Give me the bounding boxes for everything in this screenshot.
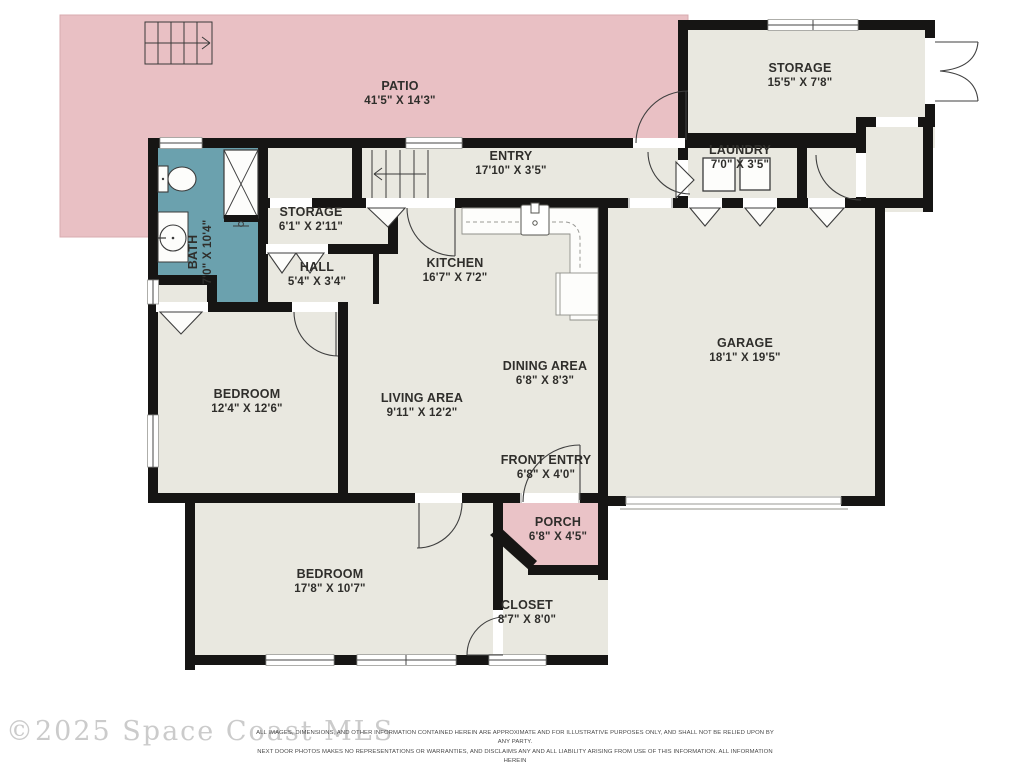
svg-text:LAUNDRY: LAUNDRY bbox=[709, 143, 772, 157]
toilet bbox=[158, 166, 196, 192]
floor-plan-svg: PATIO41'5" X 14'3"STORAGE15'5" X 7'8"ENT… bbox=[0, 0, 1024, 768]
svg-text:15'5" X 7'8": 15'5" X 7'8" bbox=[768, 77, 833, 89]
svg-text:BEDROOM: BEDROOM bbox=[214, 387, 281, 401]
garage-door bbox=[620, 497, 848, 509]
svg-text:5'4" X 3'4": 5'4" X 3'4" bbox=[288, 276, 346, 288]
floor-plan-page: PATIO41'5" X 14'3"STORAGE15'5" X 7'8"ENT… bbox=[0, 0, 1024, 768]
svg-text:12'4" X 12'6": 12'4" X 12'6" bbox=[211, 403, 282, 415]
disclaimer-line-2: NEXT DOOR PHOTOS MAKES NO REPRESENTATION… bbox=[250, 748, 780, 767]
svg-text:18'1" X 19'5": 18'1" X 19'5" bbox=[709, 352, 780, 364]
svg-text:6'8" X 4'5": 6'8" X 4'5" bbox=[529, 531, 587, 543]
disclaimer-line-1: ALL IMAGES, DIMENSIONS, AND OTHER INFORM… bbox=[250, 729, 780, 748]
svg-text:KITCHEN: KITCHEN bbox=[427, 256, 484, 270]
shower bbox=[224, 150, 258, 226]
svg-text:BATH: BATH bbox=[186, 235, 200, 270]
svg-text:16'7" X 7'2": 16'7" X 7'2" bbox=[423, 272, 488, 284]
svg-text:ENTRY: ENTRY bbox=[490, 149, 533, 163]
svg-text:6'8" X 8'3": 6'8" X 8'3" bbox=[516, 375, 574, 387]
svg-text:6'1" X 2'11": 6'1" X 2'11" bbox=[279, 221, 343, 233]
svg-text:7'0" X 10'4": 7'0" X 10'4" bbox=[202, 220, 214, 285]
svg-text:8'7" X 8'0": 8'7" X 8'0" bbox=[498, 614, 556, 626]
kitchen-sink bbox=[521, 203, 549, 235]
svg-text:FRONT ENTRY: FRONT ENTRY bbox=[501, 453, 592, 467]
svg-text:STORAGE: STORAGE bbox=[769, 61, 832, 75]
svg-text:STORAGE: STORAGE bbox=[280, 205, 343, 219]
svg-text:PATIO: PATIO bbox=[381, 79, 418, 93]
svg-text:17'8" X 10'7": 17'8" X 10'7" bbox=[294, 583, 365, 595]
svg-text:CLOSET: CLOSET bbox=[501, 598, 553, 612]
svg-text:BEDROOM: BEDROOM bbox=[297, 567, 364, 581]
svg-text:PORCH: PORCH bbox=[535, 515, 581, 529]
svg-text:6'8" X 4'0": 6'8" X 4'0" bbox=[517, 469, 575, 481]
svg-text:GARAGE: GARAGE bbox=[717, 336, 773, 350]
svg-text:DINING AREA: DINING AREA bbox=[503, 359, 587, 373]
svg-text:17'10" X 3'5": 17'10" X 3'5" bbox=[475, 165, 546, 177]
svg-text:9'11" X 12'2": 9'11" X 12'2" bbox=[387, 407, 458, 419]
disclaimer-text: ALL IMAGES, DIMENSIONS, AND OTHER INFORM… bbox=[250, 729, 780, 768]
storage-french-doors bbox=[935, 42, 978, 101]
svg-text:7'0" X 3'5": 7'0" X 3'5" bbox=[711, 159, 769, 171]
svg-text:HALL: HALL bbox=[300, 260, 334, 274]
bath-vanity bbox=[158, 212, 188, 262]
svg-text:41'5" X 14'3": 41'5" X 14'3" bbox=[364, 95, 435, 107]
svg-text:LIVING AREA: LIVING AREA bbox=[381, 391, 463, 405]
